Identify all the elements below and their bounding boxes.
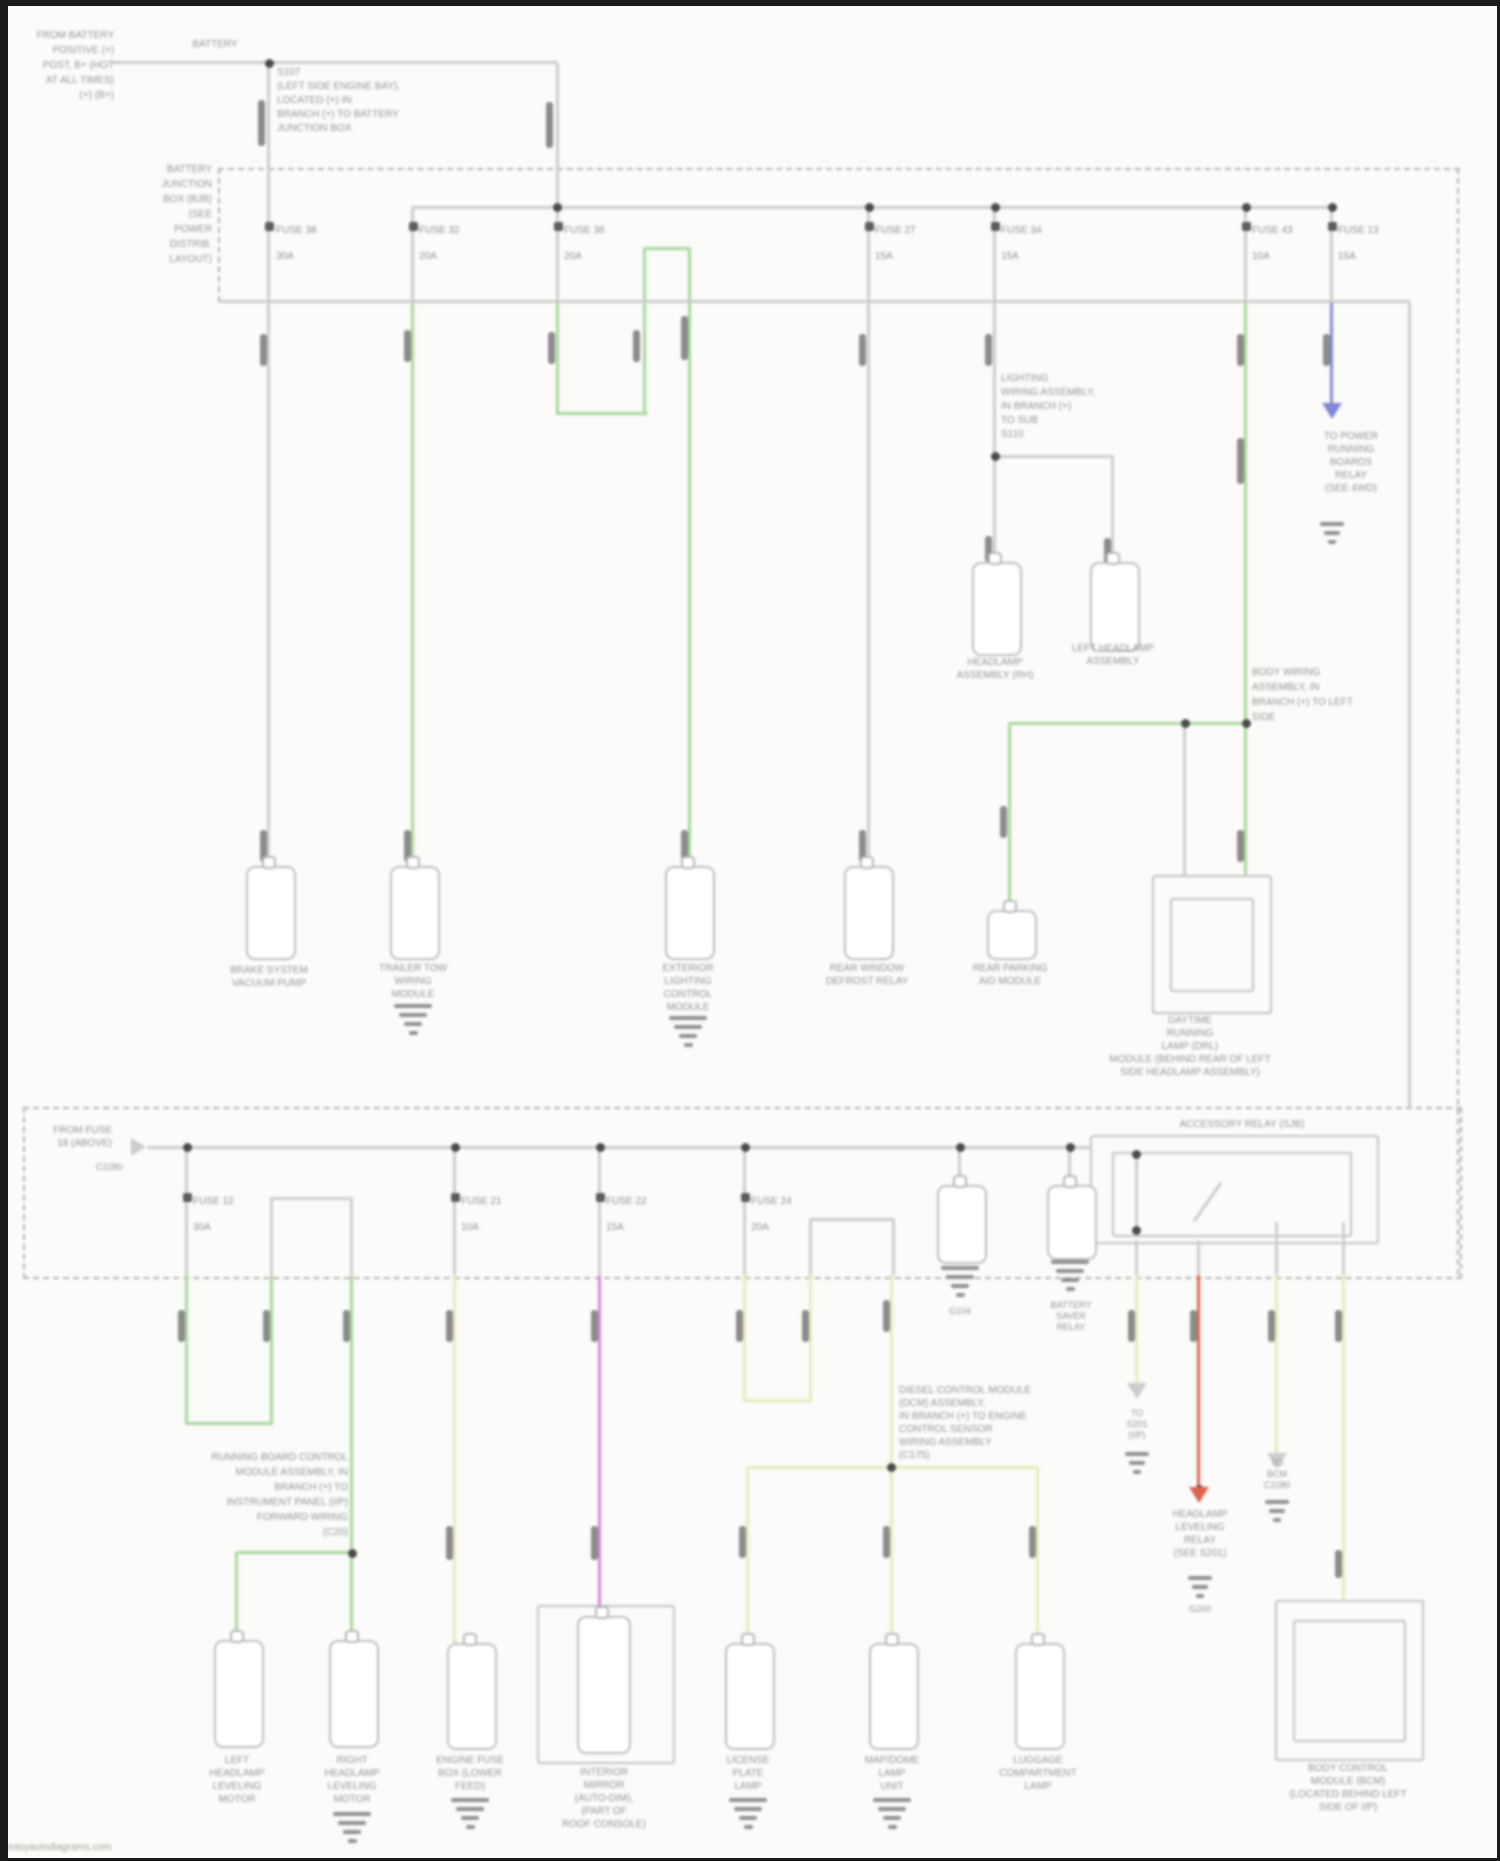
wire-relay-sw-pin3 xyxy=(1275,1222,1278,1240)
junction-dot-4 xyxy=(1242,203,1251,212)
wire-fuse6-green2 xyxy=(1244,724,1247,875)
right-motor-label: RIGHTHEADLAMPLEVELINGMOTOR xyxy=(300,1754,404,1806)
junction-dot-18 xyxy=(1132,1226,1141,1235)
drl-module-box-inner xyxy=(1170,898,1254,992)
g104-label: G104 xyxy=(938,1306,982,1317)
wire-s2-272-green xyxy=(270,1275,273,1425)
blue-offpage-arrow xyxy=(1322,403,1342,419)
wire-fuse3-g6 xyxy=(688,302,691,868)
pin1-offpage-arrow xyxy=(1127,1383,1147,1399)
wire-fuse5-branch-b xyxy=(1111,458,1114,562)
wire-box1-bottom xyxy=(218,300,1410,303)
brake-vacuum-pump xyxy=(246,866,296,960)
connector-tick-21 xyxy=(263,1310,270,1342)
defrost-label: REAR WINDOWDEFROST RELAY xyxy=(815,962,919,988)
wire-fuse3-g3 xyxy=(643,249,646,415)
ground-symbol-10 xyxy=(1115,1452,1159,1479)
junction-dot-17 xyxy=(1132,1150,1141,1159)
left-leveling-motor xyxy=(214,1640,264,1748)
wire-relay-pin3 xyxy=(1275,1240,1278,1275)
right-dashed-edge xyxy=(1457,168,1459,1275)
fuse-38-element xyxy=(265,222,274,231)
fuse-34-element xyxy=(991,222,1000,231)
rear-parking-aid-pigtail xyxy=(1003,900,1017,913)
connector-tick-31 xyxy=(883,1526,890,1558)
wire-s2-748-v xyxy=(746,1469,749,1645)
headlamp-lh-pigtail xyxy=(1106,552,1120,565)
fuse-21-rating: 10A xyxy=(461,1222,479,1233)
wire-fuse3-g5 xyxy=(688,247,691,302)
wire-s2-h-right xyxy=(890,1466,1039,1469)
connector-tick-36 xyxy=(1335,1310,1342,1342)
bcm-label: BODY CONTROLMODULE (BCM)(LOCATED BEHIND … xyxy=(1256,1762,1440,1814)
red-offpage-arrow xyxy=(1189,1487,1209,1503)
drl-module-label: DAYTIMERUNNINGLAMP (DRL)MODULE (BEHIND R… xyxy=(1100,1014,1280,1079)
mirror-capsule xyxy=(577,1616,631,1754)
bus2-feed-arrow xyxy=(131,1138,146,1156)
s2-left-note: RUNNING BOARD CONTROLMODULE ASSEMBLY, IN… xyxy=(160,1450,348,1540)
connector-tick-10 xyxy=(985,334,992,366)
ext-lighting-label: EXTERIORLIGHTINGCONTROLMODULE xyxy=(636,962,740,1014)
luggage-lamp-cap-pigtail xyxy=(1031,1633,1045,1646)
fuse-27-label: FUSE 27 xyxy=(875,225,916,236)
wire-relay-pin2 xyxy=(1197,1240,1200,1275)
ground-symbol-6 xyxy=(726,1798,770,1834)
s2-right-note: DIESEL CONTROL MODULE(DCM) ASSEMBLY,IN B… xyxy=(899,1384,1079,1462)
blue-ref-note: TO POWERRUNNINGBOARDSRELAY(SEE 4WD) xyxy=(1286,430,1416,495)
connector-tick-32 xyxy=(1029,1526,1036,1558)
connector-tick-6 xyxy=(681,316,688,360)
battery-label: BATTERY xyxy=(170,38,260,51)
wire-relay-pin1-y xyxy=(1135,1275,1138,1385)
bcm-box-inner xyxy=(1293,1620,1406,1742)
wire-s2-811-yellow xyxy=(809,1275,812,1402)
wire-s2-272-up xyxy=(270,1199,273,1275)
red-ref-label: HEADLAMPLEVELINGRELAY(SEE S201) xyxy=(1148,1508,1252,1560)
window-edge-top xyxy=(0,0,1500,6)
bjb-label: BATTERYJUNCTIONBOX (BJB)(SEEPOWERDISTRIB… xyxy=(128,162,212,267)
connector-tick-20 xyxy=(178,1310,185,1342)
wire-fuse3-g1 xyxy=(556,302,559,415)
wire-fuse6-green1 xyxy=(1244,302,1247,724)
fuse-43-element xyxy=(1242,222,1251,231)
wire-s2-811-up xyxy=(809,1220,812,1275)
connector-tick-0 xyxy=(260,334,267,366)
wire-s2-352-cont xyxy=(350,1554,353,1640)
junction-dot-7 xyxy=(1181,719,1190,728)
splice-s107-note: S107(LEFT SIDE ENGINE BAY),LOCATED (+) I… xyxy=(277,66,457,136)
wire-s2-352-up xyxy=(350,1199,353,1275)
wire-s2f2-wire xyxy=(453,1149,456,1275)
junction-dot-8 xyxy=(1242,719,1251,728)
ground-symbol-7 xyxy=(870,1798,914,1834)
connector-tick-15 xyxy=(1237,438,1244,484)
connector-tick-25 xyxy=(591,1310,598,1342)
fuse-12-rating: 30A xyxy=(193,1222,211,1233)
dome-lamp-cap xyxy=(869,1643,919,1750)
wire-bus2 xyxy=(147,1146,1090,1149)
connector-tick-4 xyxy=(548,332,555,364)
mirror-label: INTERIORMIRROR(AUTO-DIM),(PART OFROOF CO… xyxy=(540,1766,668,1831)
trailer-tow-module xyxy=(390,866,440,960)
ground-symbol-2 xyxy=(938,1266,982,1302)
fuse-12-element xyxy=(183,1193,192,1202)
right-leveling-motor-pigtail xyxy=(345,1630,359,1643)
left-leveling-motor-pigtail xyxy=(230,1630,244,1643)
headlamp-lh-label: LEFT HEADLAMPASSEMBLY xyxy=(1063,642,1163,668)
fuse-32-rating: 20A xyxy=(419,251,437,262)
pin3-ref-label: TOBCMC2280 xyxy=(1245,1458,1309,1491)
connector-tick-17 xyxy=(1323,334,1330,366)
connector-tick-14 xyxy=(1237,334,1244,366)
fuse-24-label: FUSE 24 xyxy=(751,1196,792,1207)
wire-s2-branch-h xyxy=(237,1551,353,1554)
fuse-32-label: FUSE 32 xyxy=(419,225,460,236)
wire-s2f4-u xyxy=(743,1399,812,1402)
wire-relay-pin2-red xyxy=(1197,1275,1200,1487)
fuse-21-label: FUSE 21 xyxy=(461,1196,502,1207)
fuse-24-element xyxy=(741,1193,750,1202)
connector-tick-30 xyxy=(739,1526,746,1558)
fuse-36-label: FUSE 36 xyxy=(564,225,605,236)
fuse-12-label: FUSE 12 xyxy=(193,1196,234,1207)
ground-symbol-1 xyxy=(666,1016,710,1052)
wire-s2f4-yellow xyxy=(743,1275,746,1402)
wire-fuse2-green xyxy=(411,302,414,868)
wire-fuse5-branch-a xyxy=(993,457,996,562)
wire-s2-loop-b xyxy=(809,1218,895,1221)
fuse-38-label: FUSE 38 xyxy=(276,225,317,236)
fuse-36-rating: 20A xyxy=(564,251,582,262)
connector-tick-8 xyxy=(859,334,866,366)
wire-s2f2-yellow xyxy=(453,1275,456,1645)
engine-fuse-box-cap-pigtail xyxy=(463,1633,477,1646)
connector-tick-37 xyxy=(1335,1550,1342,1578)
junction-dot-3 xyxy=(991,203,1000,212)
pin1-ref-label: TOS201(I/P) xyxy=(1105,1408,1169,1441)
connector-tick-33 xyxy=(1128,1310,1135,1342)
fuse-22-rating: 15A xyxy=(606,1222,624,1233)
wire-s2-892-up xyxy=(892,1220,895,1275)
batt-saver-cap-pigtail xyxy=(1063,1175,1077,1188)
wiring-diagram-canvas: easyautodiagrams.com FUSE 3830AFUSE 3220… xyxy=(0,0,1500,1861)
fuse-13-rating: 15A xyxy=(1338,251,1356,262)
fuse-22-label: FUSE 22 xyxy=(606,1196,647,1207)
junction-dot-14 xyxy=(1066,1143,1075,1152)
wire-fuse5-wire xyxy=(993,209,996,457)
wire-s2-1038-v xyxy=(1036,1466,1039,1645)
wire-relay-pin3-y xyxy=(1275,1275,1278,1455)
wire-relay-sw-pin4 xyxy=(1342,1222,1345,1240)
connector-tick-27 xyxy=(736,1310,743,1342)
connector-tick-22 xyxy=(343,1310,350,1342)
right-leveling-motor xyxy=(329,1640,379,1748)
connector-tick-18 xyxy=(258,100,265,146)
engine-fusebox-label: ENGINE FUSEBOX (LOWERFEED) xyxy=(418,1754,522,1793)
mirror-capsule-pigtail xyxy=(595,1606,609,1619)
headlamp-rh-label: HEADLAMPASSEMBLY (RH) xyxy=(950,656,1040,682)
ground-cap-960 xyxy=(937,1185,987,1264)
fuse-21-element xyxy=(451,1193,460,1202)
luggage-lamp-cap xyxy=(1015,1643,1065,1750)
luggage-lamp-label: LUGGAGECOMPARTMENTLAMP xyxy=(986,1754,1090,1793)
wire-s2f3-magenta xyxy=(598,1275,601,1618)
wire-s2f3-wire xyxy=(598,1149,601,1275)
fuse-32-element xyxy=(409,222,418,231)
junction-dot-13 xyxy=(956,1143,965,1152)
fuse-43-label: FUSE 43 xyxy=(1252,225,1293,236)
brake-pump-label: BRAKE SYSTEMVACUUM PUMP xyxy=(217,964,321,990)
fuse-13-label: FUSE 13 xyxy=(1338,225,1379,236)
wire-fuse3-g4 xyxy=(643,247,691,250)
wire-s2f1-wire xyxy=(185,1149,188,1275)
connector-tick-19 xyxy=(546,102,553,148)
junction-dot-1 xyxy=(553,203,562,212)
trailer-tow-module-pigtail xyxy=(406,856,420,869)
dome-lamp-label: MAP/DOMELAMPUNIT xyxy=(840,1754,944,1793)
s2-feed-conn: C2280 xyxy=(96,1162,146,1173)
rear-parking-aid xyxy=(987,910,1037,960)
wire-drl-left-pin xyxy=(1183,724,1186,875)
wire-relay-pin4 xyxy=(1342,1240,1345,1275)
license-lamp-label: LICENSEPLATELAMP xyxy=(696,1754,800,1793)
wire-green-branch-v xyxy=(1008,725,1011,912)
red-ground-label: G200 xyxy=(1182,1604,1218,1615)
ground-symbol-3 xyxy=(1048,1260,1092,1296)
wire-fuse3-g2 xyxy=(556,412,648,415)
junction-dot-2 xyxy=(865,203,874,212)
body-wiring-note: BODY WIRINGASSEMBLY, INBRANCH (+) TO LEF… xyxy=(1252,665,1397,725)
battery-feed-note: FROM BATTERYPOSITIVE (+)POST, B+ (HOTAT … xyxy=(14,28,114,103)
fuse-38-rating: 30A xyxy=(276,251,294,262)
junction-dot-6 xyxy=(991,452,1000,461)
fuse-36-element xyxy=(554,222,563,231)
lighting-wiring-note: LIGHTINGWIRING ASSEMBLY,IN BRANCH (+)TO … xyxy=(1001,372,1126,442)
fuse-27-rating: 15A xyxy=(875,251,893,262)
ground-cap-960-pigtail xyxy=(953,1175,967,1188)
wire-right-bus-drop xyxy=(1408,302,1411,1108)
junction-dot-15 xyxy=(348,1549,357,1558)
wire-s2-237-v xyxy=(235,1551,238,1640)
junction-dot-0 xyxy=(265,59,274,68)
rear-defrost-relay xyxy=(844,866,894,960)
ground-symbol-0 xyxy=(391,1004,435,1040)
fuse-34-label: FUSE 34 xyxy=(1001,225,1042,236)
fuse-22-element xyxy=(596,1193,605,1202)
junction-dot-16 xyxy=(887,1463,896,1472)
wire-s2-h-left xyxy=(746,1466,893,1469)
s2-feed-note: FROM FUSE18 (ABOVE) xyxy=(28,1124,112,1150)
junction-dot-11 xyxy=(596,1143,605,1152)
fuse-27-element xyxy=(865,222,874,231)
relay-box-label: ACCESSORY RELAY (SJB) xyxy=(1142,1119,1342,1131)
fuse-34-rating: 15A xyxy=(1001,251,1019,262)
connector-tick-34 xyxy=(1190,1310,1197,1342)
wire-relay-pin1 xyxy=(1135,1240,1138,1275)
headlamp-rh-pigtail xyxy=(988,552,1002,565)
exterior-lighting-module xyxy=(665,866,715,960)
wire-battery-feed-h xyxy=(112,61,558,64)
fuse-13-element xyxy=(1328,222,1337,231)
wire-feed-drop xyxy=(556,63,559,209)
wire-fuse1-wire xyxy=(267,63,270,868)
connector-tick-16 xyxy=(1237,830,1244,862)
wiring-diagram-page: { "title": "Power Distribution Wiring Di… xyxy=(0,0,1500,1861)
connector-tick-13 xyxy=(1000,806,1007,838)
ground-symbol-4 xyxy=(330,1812,374,1848)
wire-s2-loop-a xyxy=(270,1197,353,1200)
wire-s2-892-yellow xyxy=(890,1275,893,1469)
wire-relay-pin4-y xyxy=(1342,1275,1345,1600)
connector-tick-29 xyxy=(883,1300,890,1332)
watermark: easyautodiagrams.com xyxy=(8,1842,111,1853)
connector-tick-23 xyxy=(446,1310,453,1342)
fuse-43-rating: 10A xyxy=(1252,251,1270,262)
relay-box-inner xyxy=(1112,1152,1352,1237)
connector-tick-35 xyxy=(1268,1310,1275,1342)
wire-s2f1-green xyxy=(185,1275,188,1425)
wire-s2f4-wire xyxy=(743,1149,746,1275)
connector-tick-24 xyxy=(446,1526,453,1560)
headlamp-rh xyxy=(972,562,1022,656)
wire-fuse5-branch-h xyxy=(993,455,1114,458)
wire-fuse4-wire xyxy=(867,209,870,868)
fuse-24-rating: 20A xyxy=(751,1222,769,1233)
engine-fuse-box-cap xyxy=(447,1643,497,1750)
connector-tick-5 xyxy=(633,330,640,362)
wire-green-branch-h xyxy=(1008,722,1247,725)
junction-dot-9 xyxy=(183,1143,192,1152)
connector-tick-26 xyxy=(591,1526,598,1560)
brake-vacuum-pump-pigtail xyxy=(262,856,276,869)
license-lamp-cap xyxy=(725,1643,775,1750)
window-edge-left xyxy=(0,0,8,1861)
dome-lamp-cap-pigtail xyxy=(885,1633,899,1646)
junction-dot-5 xyxy=(1328,203,1337,212)
junction-dot-12 xyxy=(741,1143,750,1152)
wire-s2f1-u xyxy=(185,1422,273,1425)
ground-symbol-11 xyxy=(1255,1500,1299,1527)
parking-aid-label: REAR PARKINGAID MODULE xyxy=(958,962,1062,988)
batt-saver-cap xyxy=(1047,1185,1097,1260)
exterior-lighting-module-pigtail xyxy=(681,856,695,869)
connector-tick-2 xyxy=(404,330,411,362)
license-lamp-cap-pigtail xyxy=(741,1633,755,1646)
headlamp-lh xyxy=(1090,562,1140,652)
ground-symbol-8 xyxy=(1310,522,1354,549)
wire-s2-352-green xyxy=(350,1275,353,1554)
ground-symbol-5 xyxy=(448,1798,492,1834)
trailer-module-label: TRAILER TOWWIRINGMODULE xyxy=(361,962,465,1001)
wire-s2-892-cont xyxy=(890,1469,893,1645)
batt-saver-label: BATTERYSAVERRELAY xyxy=(1040,1300,1102,1333)
connector-tick-28 xyxy=(802,1310,809,1342)
wire-relay-coil-pin xyxy=(1135,1152,1138,1233)
wire-fuse7-blue xyxy=(1330,302,1333,405)
rear-defrost-relay-pigtail xyxy=(860,856,874,869)
ground-symbol-9 xyxy=(1178,1576,1222,1603)
junction-dot-10 xyxy=(451,1143,460,1152)
left-motor-label: LEFTHEADLAMPLEVELINGMOTOR xyxy=(185,1754,289,1806)
